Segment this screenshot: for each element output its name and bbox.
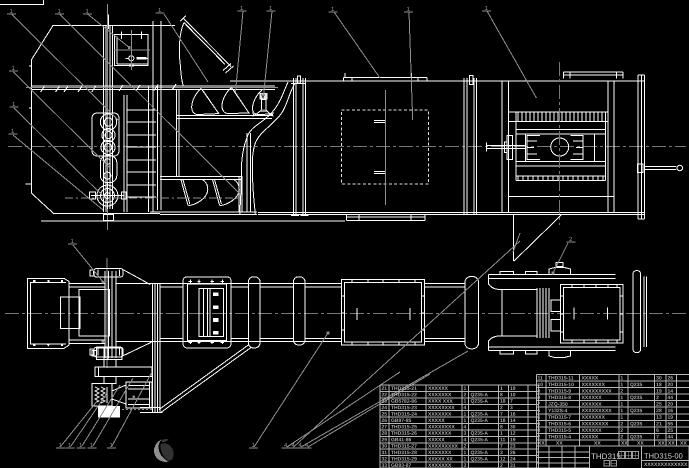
svg-text:23: 23 [510,444,516,450]
svg-text:31: 31 [510,463,516,468]
svg-text:1: 1 [463,386,466,392]
svg-text:1: 1 [500,431,503,437]
svg-text:2: 2 [537,434,540,440]
svg-text:7: 7 [500,412,503,418]
svg-text:14: 14 [510,418,516,424]
svg-text:XXXXXXXXX: XXXXXXXXX [582,389,613,395]
svg-text:THD315-22: THD315-22 [391,392,417,398]
svg-text:THD315-5: THD315-5 [548,428,571,434]
svg-text:30: 30 [656,375,662,381]
svg-text:12: 12 [500,456,506,462]
svg-text:GB97-85: GB97-85 [391,418,412,424]
svg-text:25: 25 [656,402,662,408]
svg-text:XXXXXX: XXXXXX [582,402,603,408]
svg-text:Q235-A: Q235-A [470,456,488,462]
svg-text:10: 10 [537,382,543,388]
svg-text:18: 18 [656,382,662,388]
svg-text:Q235: Q235 [630,408,642,414]
svg-text:THD315-11: THD315-11 [548,375,574,381]
svg-text:4: 4 [463,437,466,443]
svg-text:2: 2 [463,444,466,450]
svg-text:26: 26 [667,375,673,381]
svg-text:Q235-A: Q235-A [470,412,488,418]
svg-text:THD315-23: THD315-23 [391,405,417,411]
svg-text:THD315-28: THD315-28 [391,450,417,456]
svg-text:30: 30 [381,444,387,450]
svg-text:XXXXXXXX: XXXXXXXX [428,424,455,430]
svg-text:14: 14 [667,389,673,395]
svg-text:JZQ-350: JZQ-350 [548,402,568,408]
svg-text:7: 7 [537,402,540,408]
svg-text:THD315-9: THD315-9 [548,389,571,395]
svg-text:Y132S-4: Y132S-4 [548,408,568,414]
svg-text:29: 29 [381,437,387,443]
svg-text:XXXXXXXXXXXXX: XXXXXXXXXXXXX [644,462,688,468]
svg-text:1: 1 [620,375,623,381]
svg-text:Q235-A: Q235-A [470,450,488,456]
svg-text:19: 19 [656,389,662,395]
svg-text:THD315-29: THD315-29 [391,456,417,462]
svg-text:28: 28 [381,431,387,437]
svg-text:20: 20 [667,382,673,388]
svg-text:Q235: Q235 [630,395,642,401]
svg-text:1: 1 [463,412,466,418]
svg-text:XXXXXXXX: XXXXXXXX [428,405,455,411]
svg-text:18: 18 [500,399,506,405]
svg-text:2: 2 [656,395,659,401]
svg-text:31: 31 [381,450,387,456]
svg-text:THD315-21: THD315-21 [391,386,417,392]
svg-text:18: 18 [500,418,506,424]
svg-text:3: 3 [510,405,513,411]
svg-text:XXXXXX: XXXXXX [428,386,449,392]
svg-text:XXXXXX: XXXXXX [582,428,603,434]
svg-text:XXXXX: XXXXX [428,418,445,424]
svg-text:3: 3 [500,450,503,456]
svg-text:THD315-24: THD315-24 [391,412,417,418]
svg-text:19: 19 [667,415,673,421]
svg-text:8: 8 [500,392,503,398]
svg-text:4: 4 [463,424,466,430]
svg-text:2: 2 [500,463,503,468]
svg-text:XXXXX: XXXXX [582,375,599,381]
svg-text:19: 19 [510,386,516,392]
svg-text:Q235: Q235 [630,382,642,388]
svg-text:THD315-8: THD315-8 [548,395,571,401]
svg-text:1: 1 [620,415,623,421]
svg-text:6: 6 [656,428,659,434]
svg-text:XXXXXXXX: XXXXXXXX [582,421,609,427]
svg-text:19: 19 [510,437,516,443]
svg-text:XXXXXXX: XXXXXXX [582,415,606,421]
svg-text:3: 3 [463,463,466,468]
svg-text:Q235-A: Q235-A [470,392,488,398]
svg-text:2: 2 [463,392,466,398]
svg-text:7: 7 [510,399,513,405]
svg-text:7: 7 [500,444,503,450]
svg-text:9: 9 [537,389,540,395]
svg-text:THD315-4: THD315-4 [548,434,571,440]
svg-text:13: 13 [656,415,662,421]
svg-text:1: 1 [620,408,623,414]
svg-text:THD315-26: THD315-26 [391,431,417,437]
svg-text:2: 2 [620,428,623,434]
svg-text:3: 3 [537,428,540,434]
svg-text:THD315-10: THD315-10 [548,382,574,388]
svg-text:21: 21 [656,421,662,427]
svg-text:10: 10 [510,392,516,398]
svg-text:6: 6 [537,408,540,414]
svg-text:XXXX XXX: XXXX XXX [428,399,453,405]
svg-text:XXXXX: XXXXX [428,437,445,443]
svg-text:28: 28 [656,408,662,414]
svg-text:24: 24 [381,405,387,411]
svg-text:11: 11 [537,375,543,381]
svg-text:THD315-00: THD315-00 [644,451,683,460]
svg-text:21: 21 [381,386,387,392]
svg-text:THD315-27: THD315-27 [391,444,417,450]
svg-text:XXXXX XX: XXXXX XX [428,456,453,462]
svg-text:23: 23 [381,399,387,405]
svg-text:1: 1 [463,418,466,424]
svg-text:XXXXXXXXX: XXXXXXXXX [428,444,459,450]
svg-text:8: 8 [537,395,540,401]
svg-text:THD315-7: THD315-7 [548,415,571,421]
svg-text:GB93-87: GB93-87 [391,463,412,468]
svg-text:30: 30 [510,424,516,430]
svg-text:1: 1 [463,450,466,456]
svg-text:8: 8 [500,424,503,430]
svg-text:2: 2 [620,389,623,395]
svg-text:2: 2 [620,434,623,440]
svg-text:XXXXXXX: XXXXXXX [428,431,452,437]
svg-text:16: 16 [510,412,516,418]
svg-text:27: 27 [381,424,387,430]
svg-text:Q235: Q235 [630,434,642,440]
svg-text:1: 1 [463,456,466,462]
svg-text:33: 33 [381,463,387,468]
svg-text:44: 44 [667,434,673,440]
svg-text:1: 1 [620,395,623,401]
svg-text:Q235-A: Q235-A [470,418,488,424]
svg-text:32: 32 [381,456,387,462]
svg-text:THD315-6: THD315-6 [548,421,571,427]
svg-text:44: 44 [667,395,673,401]
svg-text:XXXXXXX: XXXXXXX [428,463,452,468]
svg-text:12: 12 [510,431,516,437]
svg-text:Q235-A: Q235-A [470,399,488,405]
svg-text:1: 1 [620,402,623,408]
svg-text:THD315: THD315 [591,452,621,461]
svg-text:1: 1 [463,399,466,405]
svg-text:3: 3 [463,431,466,437]
svg-text:XXXXXXX: XXXXXXX [428,450,452,456]
svg-text:25: 25 [667,428,673,434]
svg-text:1: 1 [500,386,503,392]
svg-text:XXXXX: XXXXX [582,434,599,440]
svg-text:GB5782-86: GB5782-86 [391,399,417,405]
svg-text:Q235: Q235 [630,421,642,427]
svg-text:XXXXXXXXX: XXXXXXXXX [582,408,613,414]
svg-text:XXXXXXX: XXXXXXX [582,382,606,388]
svg-text:7: 7 [656,434,659,440]
svg-text:Q235-A: Q235-A [470,431,488,437]
svg-text:25: 25 [381,412,387,418]
svg-text:22: 22 [381,392,387,398]
svg-text:26: 26 [381,418,387,424]
svg-text:16: 16 [667,408,673,414]
svg-text:2: 2 [620,421,623,427]
svg-text:THD315-25: THD315-25 [391,424,417,430]
svg-text:55: 55 [667,421,673,427]
svg-text:26: 26 [510,450,516,456]
svg-text:20: 20 [667,402,673,408]
svg-text:4: 4 [537,421,540,427]
svg-text:5: 5 [537,415,540,421]
svg-text:Q235-A: Q235-A [470,437,488,443]
svg-text:24: 24 [510,456,516,462]
svg-text:1: 1 [620,382,623,388]
svg-text:4: 4 [463,405,466,411]
svg-text:GB41-86: GB41-86 [391,437,412,443]
svg-text:2: 2 [500,405,503,411]
svg-text:XXXXXXX: XXXXXXX [428,392,452,398]
svg-text:XXXXXX: XXXXXX [582,395,603,401]
svg-text:11: 11 [500,437,506,443]
svg-text:XXXXXXX: XXXXXXX [428,412,452,418]
